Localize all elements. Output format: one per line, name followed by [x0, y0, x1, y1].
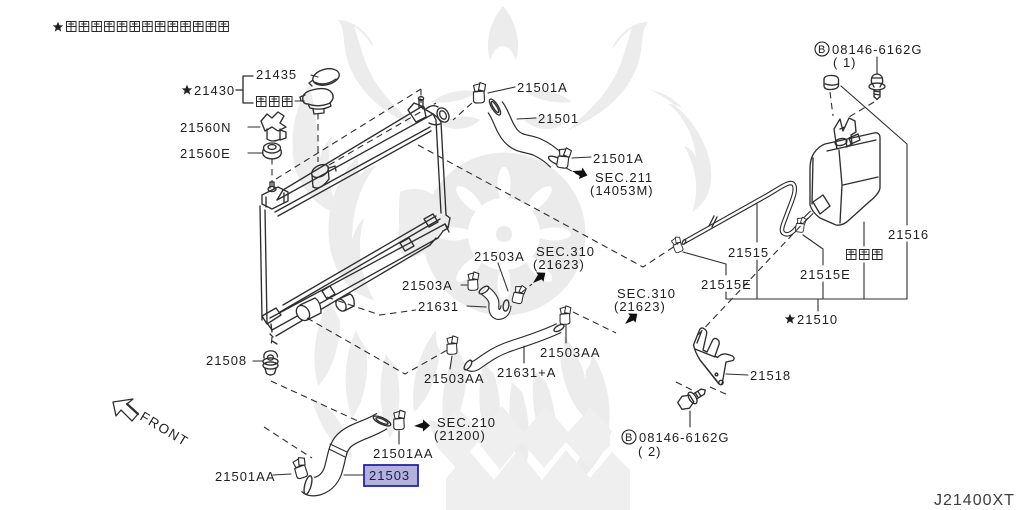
svg-text:21503A: 21503A: [474, 249, 525, 264]
svg-text:21560E: 21560E: [180, 146, 231, 161]
svg-text:21518: 21518: [750, 368, 791, 383]
svg-text:21631+A: 21631+A: [497, 365, 556, 380]
svg-text:21631: 21631: [418, 299, 459, 314]
svg-text:21515: 21515: [728, 245, 769, 260]
svg-text:21501: 21501: [538, 111, 579, 126]
svg-text:21560N: 21560N: [180, 120, 232, 135]
svg-text:08146-6162G: 08146-6162G: [639, 430, 730, 445]
svg-text:(21623): (21623): [533, 257, 585, 272]
svg-text:B: B: [625, 432, 632, 444]
svg-text:21510: 21510: [797, 312, 838, 327]
svg-text:J21400XT: J21400XT: [934, 492, 1015, 509]
svg-text:21503AA: 21503AA: [424, 371, 485, 386]
svg-text:21503: 21503: [369, 468, 410, 483]
svg-text:21435: 21435: [256, 67, 297, 82]
svg-text:21516: 21516: [888, 227, 929, 242]
svg-text:B: B: [818, 44, 825, 56]
svg-text:(14053M): (14053M): [590, 183, 654, 198]
svg-text:(21200): (21200): [434, 428, 486, 443]
svg-text:21501AA: 21501AA: [373, 446, 434, 461]
svg-text:21515E: 21515E: [701, 277, 752, 292]
svg-text:FRONT: FRONT: [137, 409, 191, 450]
svg-text:(21623): (21623): [614, 299, 666, 314]
svg-text:21430: 21430: [194, 83, 235, 98]
svg-text:21508: 21508: [206, 353, 247, 368]
svg-text:21515E: 21515E: [800, 267, 851, 282]
svg-text:21501A: 21501A: [517, 80, 568, 95]
svg-text:( 1): ( 1): [833, 55, 857, 70]
svg-text:21501AA: 21501AA: [215, 469, 276, 484]
svg-text:21503A: 21503A: [402, 278, 453, 293]
svg-text:21503AA: 21503AA: [540, 345, 601, 360]
svg-text:( 2): ( 2): [638, 444, 662, 459]
svg-text:21501A: 21501A: [593, 151, 644, 166]
